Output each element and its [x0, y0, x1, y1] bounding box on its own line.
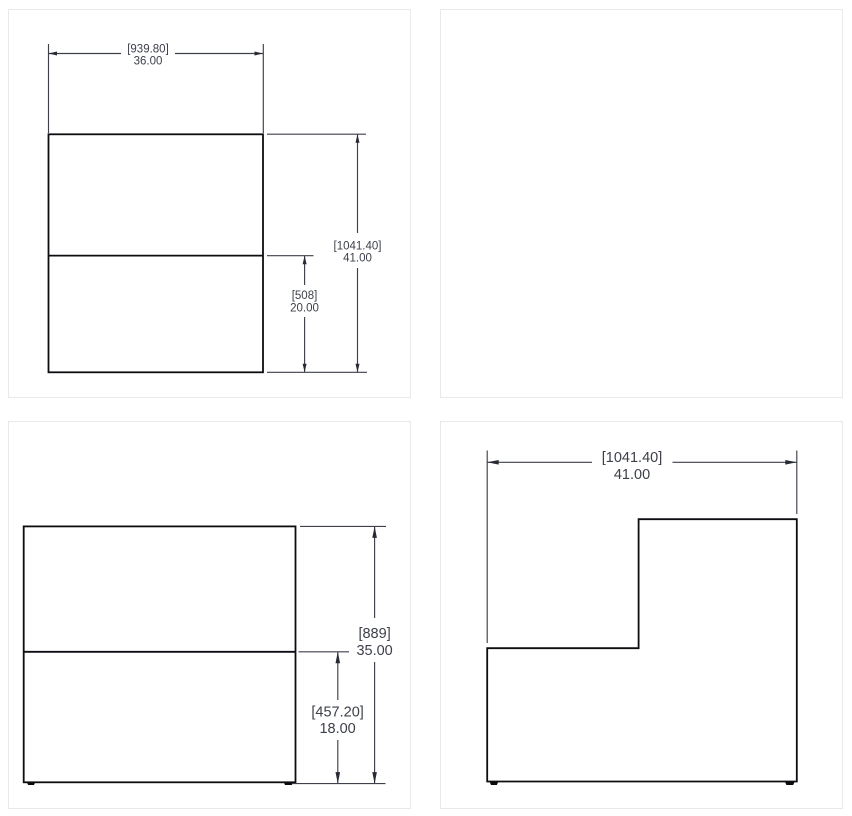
svg-text:41.00: 41.00 — [343, 253, 372, 265]
svg-text:36.00: 36.00 — [134, 56, 163, 68]
svg-text:[1041.40]: [1041.40] — [334, 241, 382, 253]
svg-text:[1041.40]: [1041.40] — [602, 450, 662, 466]
svg-text:[939.80]: [939.80] — [127, 44, 169, 56]
svg-text:18.00: 18.00 — [319, 721, 355, 737]
svg-text:20.00: 20.00 — [290, 303, 319, 315]
svg-text:[457.20]: [457.20] — [311, 704, 363, 720]
svg-text:[508]: [508] — [292, 290, 318, 302]
svg-text:41.00: 41.00 — [614, 467, 650, 483]
svg-text:[889]: [889] — [358, 626, 390, 642]
svg-text:35.00: 35.00 — [356, 643, 392, 659]
